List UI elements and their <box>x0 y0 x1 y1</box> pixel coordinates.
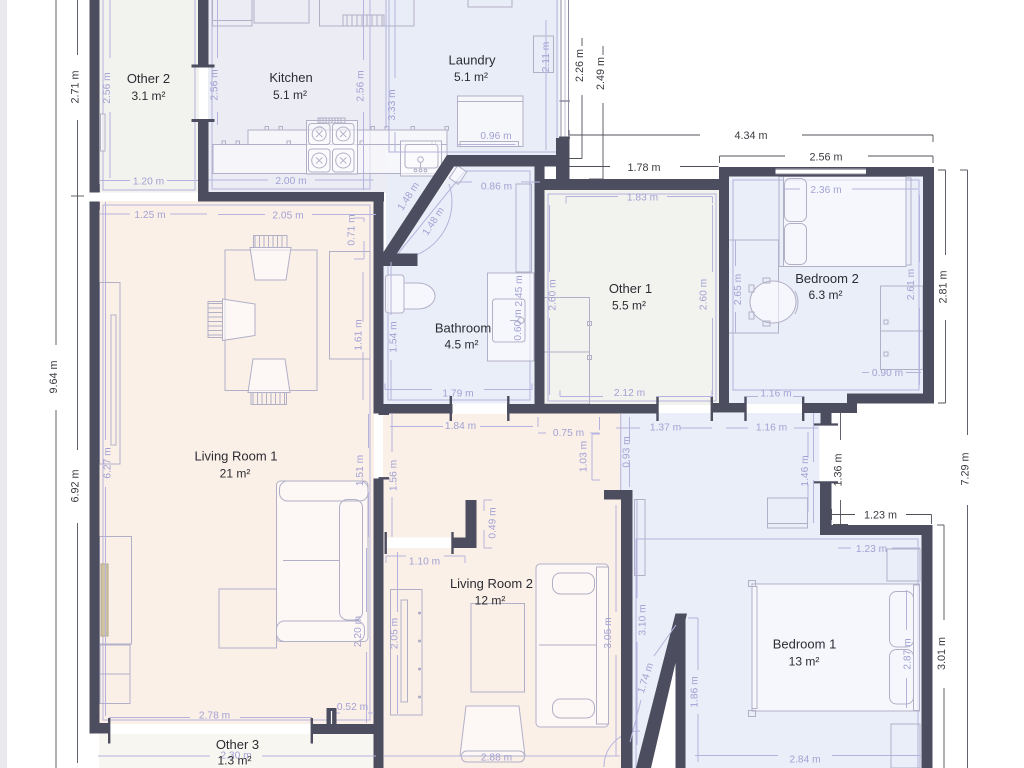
svg-text:6.3 m²: 6.3 m² <box>808 288 842 302</box>
svg-text:Other 3: Other 3 <box>216 737 259 752</box>
svg-text:1.84 m: 1.84 m <box>445 421 476 432</box>
svg-text:2.87 m: 2.87 m <box>903 638 914 669</box>
svg-text:6.27 m: 6.27 m <box>103 447 114 478</box>
svg-text:0.52 m: 0.52 m <box>337 702 368 713</box>
svg-text:0.75 m: 0.75 m <box>553 428 584 439</box>
svg-text:1.23 m: 1.23 m <box>864 510 897 522</box>
svg-text:2.56 m: 2.56 m <box>102 72 113 103</box>
svg-text:2.84 m: 2.84 m <box>789 755 820 766</box>
svg-text:Bathroom: Bathroom <box>435 321 491 336</box>
svg-text:1.78 m: 1.78 m <box>627 162 660 174</box>
svg-text:3.33 m: 3.33 m <box>387 89 398 120</box>
svg-text:2.61 m: 2.61 m <box>906 269 917 300</box>
svg-text:1.36 m: 1.36 m <box>833 453 845 486</box>
svg-text:1.37 m: 1.37 m <box>650 423 681 434</box>
svg-text:1.83 m: 1.83 m <box>627 193 658 204</box>
svg-text:2.81 m: 2.81 m <box>938 270 950 303</box>
svg-text:2.05 m: 2.05 m <box>390 618 401 649</box>
svg-text:2.60 m: 2.60 m <box>699 279 710 310</box>
svg-text:1.86 m: 1.86 m <box>690 676 701 707</box>
svg-text:0.60 m: 0.60 m <box>513 309 524 340</box>
svg-text:13 m²: 13 m² <box>789 655 820 669</box>
svg-text:0.90 m: 0.90 m <box>872 368 903 379</box>
svg-text:0.86 m: 0.86 m <box>481 182 512 193</box>
svg-text:6.92 m: 6.92 m <box>70 469 82 502</box>
svg-text:2.56 m: 2.56 m <box>210 69 221 100</box>
svg-text:2.12 m: 2.12 m <box>614 388 645 399</box>
svg-text:3.1 m²: 3.1 m² <box>131 89 165 103</box>
svg-text:5.1 m²: 5.1 m² <box>454 70 488 84</box>
svg-text:Kitchen: Kitchen <box>269 70 312 85</box>
svg-text:1.3 m²: 1.3 m² <box>217 754 251 768</box>
svg-text:4.34 m: 4.34 m <box>734 130 767 142</box>
svg-text:2.71 m: 2.71 m <box>70 70 82 103</box>
svg-text:1.10 m: 1.10 m <box>409 557 440 568</box>
svg-text:1.54 m: 1.54 m <box>389 321 400 352</box>
svg-text:1.03 m: 1.03 m <box>579 441 590 472</box>
svg-text:0.93 m: 0.93 m <box>622 436 633 467</box>
svg-text:2.05 m: 2.05 m <box>272 211 303 222</box>
svg-text:3.10 m: 3.10 m <box>638 604 649 635</box>
svg-text:0.96 m: 0.96 m <box>480 131 511 142</box>
svg-text:2.88 m: 2.88 m <box>481 753 512 764</box>
svg-text:Other 2: Other 2 <box>127 71 170 86</box>
svg-text:1.61 m: 1.61 m <box>354 319 365 350</box>
svg-text:Living Room 2: Living Room 2 <box>450 576 533 591</box>
svg-text:3.01 m: 3.01 m <box>936 637 948 670</box>
svg-text:1.20 m: 1.20 m <box>133 177 164 188</box>
svg-text:2.20 m: 2.20 m <box>353 616 364 647</box>
svg-text:2.78 m: 2.78 m <box>199 711 230 722</box>
svg-text:2.60 m: 2.60 m <box>548 279 559 310</box>
svg-text:2.49 m: 2.49 m <box>595 57 607 90</box>
svg-text:0.49 m: 0.49 m <box>488 507 499 538</box>
svg-text:2.00 m: 2.00 m <box>275 176 306 187</box>
svg-text:Laundry: Laundry <box>449 53 496 68</box>
svg-text:2.56 m: 2.56 m <box>809 152 842 164</box>
svg-text:1.79 m: 1.79 m <box>442 389 473 400</box>
svg-text:1.16 m: 1.16 m <box>760 389 791 400</box>
svg-text:7.29 m: 7.29 m <box>960 452 972 485</box>
svg-text:1.25 m: 1.25 m <box>134 210 165 221</box>
svg-text:12 m²: 12 m² <box>475 594 506 608</box>
svg-text:2.45 m: 2.45 m <box>514 275 525 306</box>
svg-text:5.1 m²: 5.1 m² <box>273 88 307 102</box>
svg-text:3.05 m: 3.05 m <box>603 617 614 648</box>
svg-text:1.51 m: 1.51 m <box>355 455 366 486</box>
svg-text:Living Room 1: Living Room 1 <box>194 449 277 464</box>
svg-text:2.36 m: 2.36 m <box>810 185 841 196</box>
svg-text:1.23 m: 1.23 m <box>856 544 887 555</box>
svg-text:4.5 m²: 4.5 m² <box>444 338 478 352</box>
svg-text:9.64 m: 9.64 m <box>48 360 60 393</box>
svg-text:0.71 m: 0.71 m <box>347 214 358 245</box>
svg-text:Other 1: Other 1 <box>609 281 652 296</box>
svg-text:2.26 m: 2.26 m <box>574 49 586 82</box>
svg-text:5.5 m²: 5.5 m² <box>612 299 646 313</box>
svg-text:2.56 m: 2.56 m <box>356 70 367 101</box>
svg-text:1.46 m: 1.46 m <box>800 455 811 486</box>
svg-text:Bedroom 1: Bedroom 1 <box>773 637 837 652</box>
svg-text:1.56 m: 1.56 m <box>389 460 400 491</box>
svg-text:21 m²: 21 m² <box>220 467 251 481</box>
svg-text:Bedroom 2: Bedroom 2 <box>795 271 859 286</box>
svg-text:2.11 m: 2.11 m <box>541 42 552 72</box>
svg-text:1.16 m: 1.16 m <box>756 423 787 434</box>
svg-text:2.65 m: 2.65 m <box>733 274 744 305</box>
